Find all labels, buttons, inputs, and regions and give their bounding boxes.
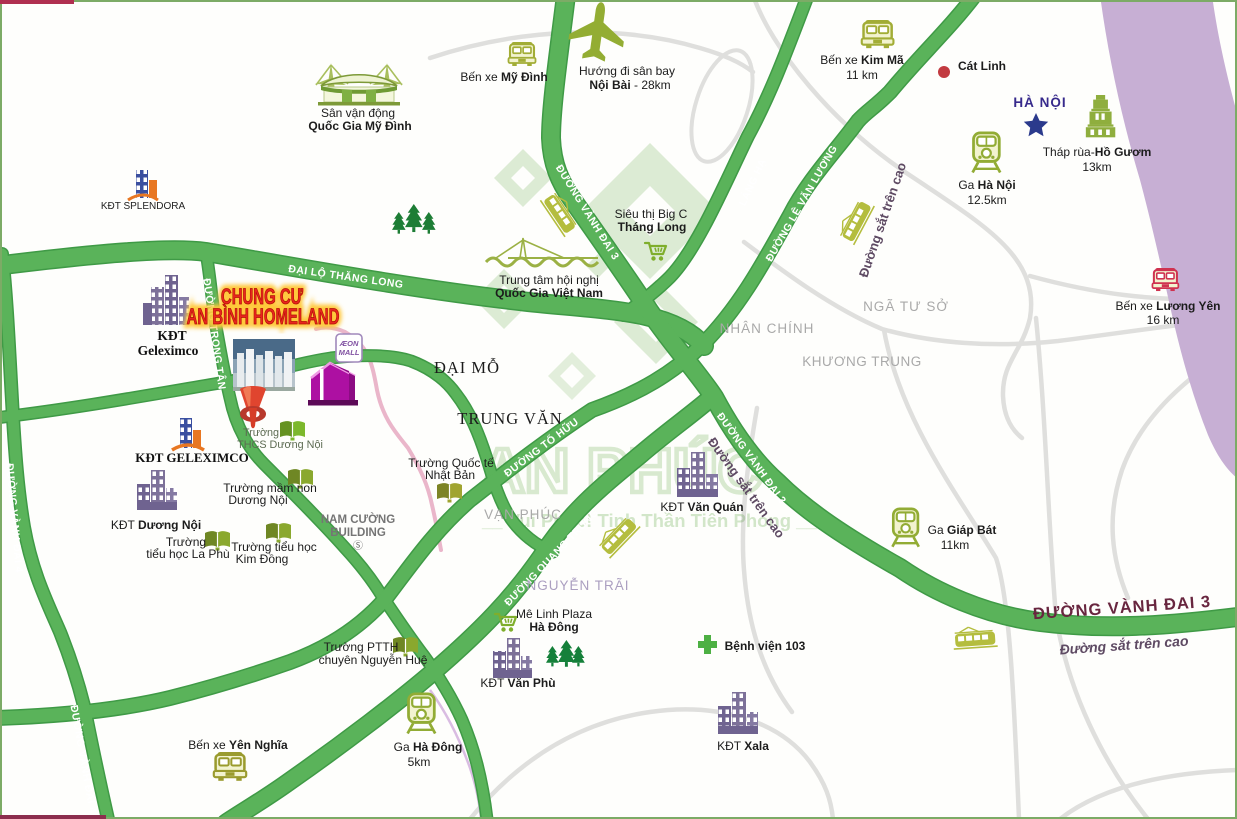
svg-text:KHƯƠNG TRUNG: KHƯƠNG TRUNG (802, 354, 922, 369)
svg-text:NGÃ TƯ SỞ: NGÃ TƯ SỞ (863, 299, 949, 314)
svg-text:KĐT Dương Nội: KĐT Dương Nội (111, 518, 201, 532)
svg-text:Nhật Bản: Nhật Bản (425, 468, 475, 482)
svg-text:Bệnh viện 103: Bệnh viện 103 (725, 639, 806, 653)
svg-text:Ga Hà Đông: Ga Hà Đông (394, 740, 463, 754)
svg-text:chuyên Nguyễn Huệ: chuyên Nguyễn Huệ (319, 652, 428, 667)
svg-text:13km: 13km (1082, 160, 1111, 174)
svg-text:Ga Hà Nội: Ga Hà Nội (958, 178, 1015, 192)
svg-text:NGUYỄN TRÃI: NGUYỄN TRÃI (526, 578, 629, 593)
svg-text:12.5km: 12.5km (967, 193, 1006, 207)
svg-text:NHÂN CHÍNH: NHÂN CHÍNH (720, 321, 815, 336)
svg-text:Tháng Long: Tháng Long (618, 220, 687, 234)
svg-text:Siêu thị Big C: Siêu thị Big C (615, 207, 688, 221)
svg-text:KĐT SPLENDORA: KĐT SPLENDORA (101, 201, 186, 212)
svg-text:11 km: 11 km (846, 68, 878, 82)
svg-text:Quốc Gia Mỹ Đình: Quốc Gia Mỹ Đình (308, 119, 411, 133)
svg-text:Hướng đi sân bay: Hướng đi sân bay (579, 64, 675, 78)
svg-text:HÀ NỘI: HÀ NỘI (1013, 95, 1066, 110)
svg-text:Kim Đồng: Kim Đồng (236, 552, 289, 566)
svg-text:KĐT: KĐT (157, 328, 186, 343)
svg-text:VẠN PHÚC: VẠN PHÚC (484, 507, 562, 522)
svg-text:Bến xe Kim Mã: Bến xe Kim Mã (820, 53, 904, 67)
svg-text:KĐT Xala: KĐT Xala (717, 739, 769, 753)
svg-text:Trung tâm hội nghị: Trung tâm hội nghị (499, 273, 599, 287)
svg-text:AN BÌNH HOMELAND: AN BÌNH HOMELAND (187, 304, 340, 329)
svg-text:BUILDING: BUILDING (330, 527, 386, 539)
svg-text:Quốc Gia Việt Nam: Quốc Gia Việt Nam (495, 286, 603, 300)
svg-text:KĐT Văn Phù: KĐT Văn Phù (480, 676, 555, 690)
svg-text:Trường PTTH: Trường PTTH (324, 640, 399, 654)
svg-text:tiểu học La Phù: tiểu học La Phù (146, 547, 229, 561)
svg-text:KĐT GELEXIMCO: KĐT GELEXIMCO (135, 450, 249, 465)
svg-text:TRUNG VĂN: TRUNG VĂN (457, 409, 562, 428)
svg-text:Sân vận động: Sân vận động (321, 106, 395, 120)
svg-text:THCS Dương Nội: THCS Dương Nội (237, 439, 323, 451)
svg-text:Cát Linh: Cát Linh (958, 59, 1006, 73)
svg-text:Dương Nội: Dương Nội (228, 493, 287, 507)
svg-text:NAM CƯỜNG: NAM CƯỜNG (321, 513, 395, 526)
svg-text:Nội Bài - 28km: Nội Bài - 28km (589, 78, 670, 92)
svg-text:Trường: Trường (243, 427, 279, 439)
svg-text:Tháp rùa-Hồ Gươm: Tháp rùa-Hồ Gươm (1043, 145, 1152, 159)
svg-text:KĐT Văn Quán: KĐT Văn Quán (660, 500, 743, 514)
svg-text:16 km: 16 km (1147, 313, 1180, 327)
svg-text:Geleximco: Geleximco (138, 343, 199, 358)
svg-text:Hà Đông: Hà Đông (529, 620, 578, 634)
svg-text:11km: 11km (941, 538, 969, 552)
svg-text:ĐẠI MỖ: ĐẠI MỖ (434, 357, 500, 377)
svg-text:MALL: MALL (339, 348, 360, 357)
svg-text:Mê Linh Plaza: Mê Linh Plaza (516, 607, 592, 621)
svg-text:Ga Giáp Bát: Ga Giáp Bát (928, 523, 997, 537)
svg-text:Bến xe Mỹ Đình: Bến xe Mỹ Đình (460, 70, 547, 84)
svg-text:Bến xe Yên Nghĩa: Bến xe Yên Nghĩa (188, 738, 288, 752)
svg-text:Bến xe Lương Yên: Bến xe Lương Yên (1115, 299, 1220, 313)
svg-text:ÆON: ÆON (339, 339, 359, 348)
svg-text:Ⓢ: Ⓢ (353, 540, 363, 552)
svg-text:5km: 5km (408, 755, 431, 769)
